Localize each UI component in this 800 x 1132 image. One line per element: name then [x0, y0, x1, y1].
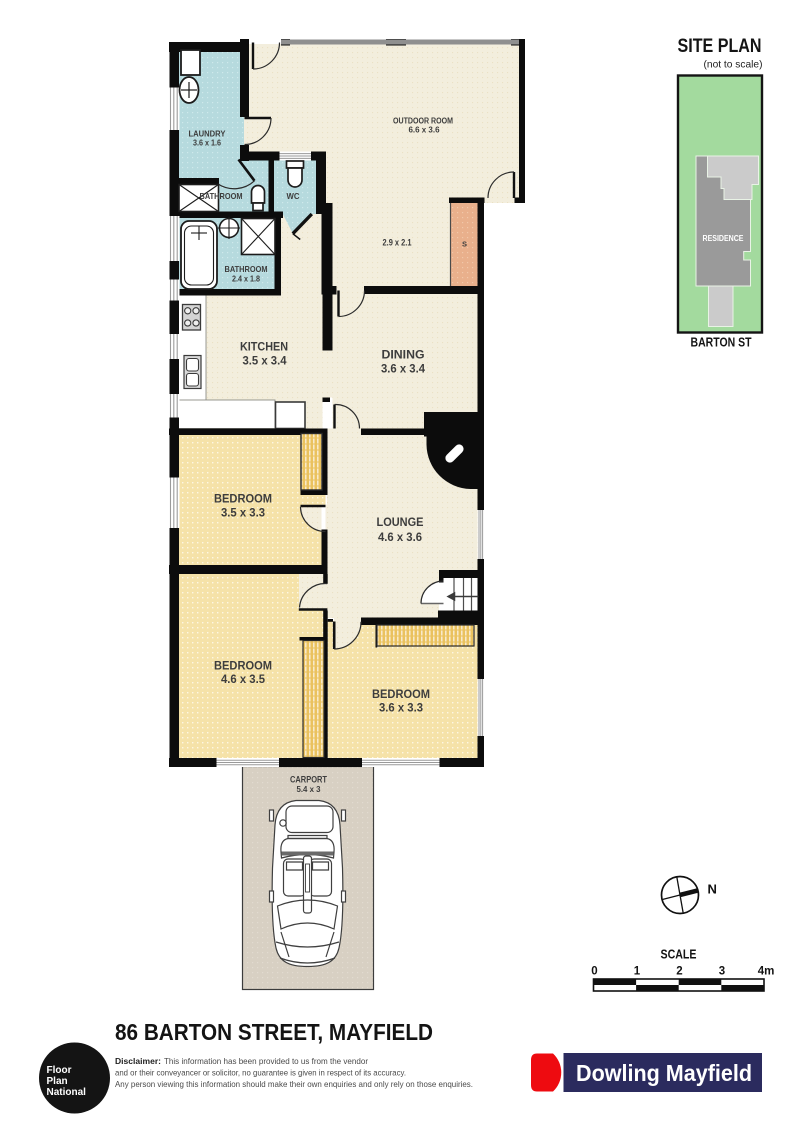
svg-text:BARTON ST: BARTON ST [691, 335, 752, 350]
svg-text:S: S [462, 242, 467, 249]
svg-text:N: N [708, 882, 717, 897]
svg-text:Any person viewing this inform: Any person viewing this information shou… [115, 1079, 473, 1089]
svg-text:4.6 x 3.6: 4.6 x 3.6 [378, 532, 422, 544]
svg-text:1: 1 [634, 966, 641, 978]
svg-text:BATHROOM: BATHROOM [225, 264, 268, 274]
svg-text:5.4 x 3: 5.4 x 3 [297, 784, 321, 794]
svg-text:WC: WC [287, 191, 300, 201]
svg-text:BEDROOM: BEDROOM [372, 687, 430, 701]
svg-text:OUTDOOR ROOM: OUTDOOR ROOM [393, 117, 453, 126]
svg-text:3: 3 [719, 966, 725, 978]
svg-text:National: National [47, 1087, 87, 1098]
svg-text:2: 2 [676, 966, 682, 978]
svg-text:4m: 4m [758, 966, 775, 978]
svg-text:LAUNDRY: LAUNDRY [189, 129, 226, 139]
svg-text:BEDROOM: BEDROOM [214, 492, 272, 506]
svg-text:3.6 x 3.3: 3.6 x 3.3 [379, 703, 423, 715]
svg-text:Plan: Plan [47, 1076, 68, 1087]
svg-text:CARPORT: CARPORT [290, 775, 327, 785]
svg-text:BATHROOM: BATHROOM [200, 191, 243, 201]
svg-text:4.6 x 3.5: 4.6 x 3.5 [221, 674, 266, 686]
svg-text:6.6 x 3.6: 6.6 x 3.6 [409, 126, 441, 135]
svg-text:2.9 x 2.1: 2.9 x 2.1 [383, 238, 413, 249]
svg-text:SITE PLAN: SITE PLAN [678, 35, 762, 57]
svg-text:Floor: Floor [47, 1065, 72, 1076]
svg-text:0: 0 [591, 966, 597, 978]
svg-text:SCALE: SCALE [661, 948, 697, 962]
svg-text:BEDROOM: BEDROOM [214, 659, 272, 673]
svg-text:This information has been prov: This information has been provided to us… [164, 1056, 368, 1066]
svg-text:(not to scale): (not to scale) [704, 59, 763, 71]
svg-text:Disclaimer:: Disclaimer: [115, 1056, 161, 1066]
svg-text:KITCHEN: KITCHEN [240, 340, 288, 354]
svg-text:2.4 x 1.8: 2.4 x 1.8 [232, 275, 260, 284]
svg-text:3.5 x 3.4: 3.5 x 3.4 [243, 356, 288, 368]
svg-text:RESIDENCE: RESIDENCE [703, 234, 745, 243]
svg-text:DINING: DINING [382, 348, 425, 362]
svg-text:3.5 x 3.3: 3.5 x 3.3 [221, 508, 265, 520]
svg-text:86 BARTON STREET, MAYFIELD: 86 BARTON STREET, MAYFIELD [115, 1019, 433, 1045]
svg-text:Dowling Mayfield: Dowling Mayfield [576, 1060, 752, 1086]
svg-text:LOUNGE: LOUNGE [377, 515, 424, 529]
svg-text:3.6 x 3.4: 3.6 x 3.4 [381, 364, 426, 376]
svg-text:and or their conveyancer or so: and or their conveyancer or solicitor, n… [115, 1068, 406, 1078]
svg-text:3.6 x 1.6: 3.6 x 1.6 [193, 139, 221, 148]
